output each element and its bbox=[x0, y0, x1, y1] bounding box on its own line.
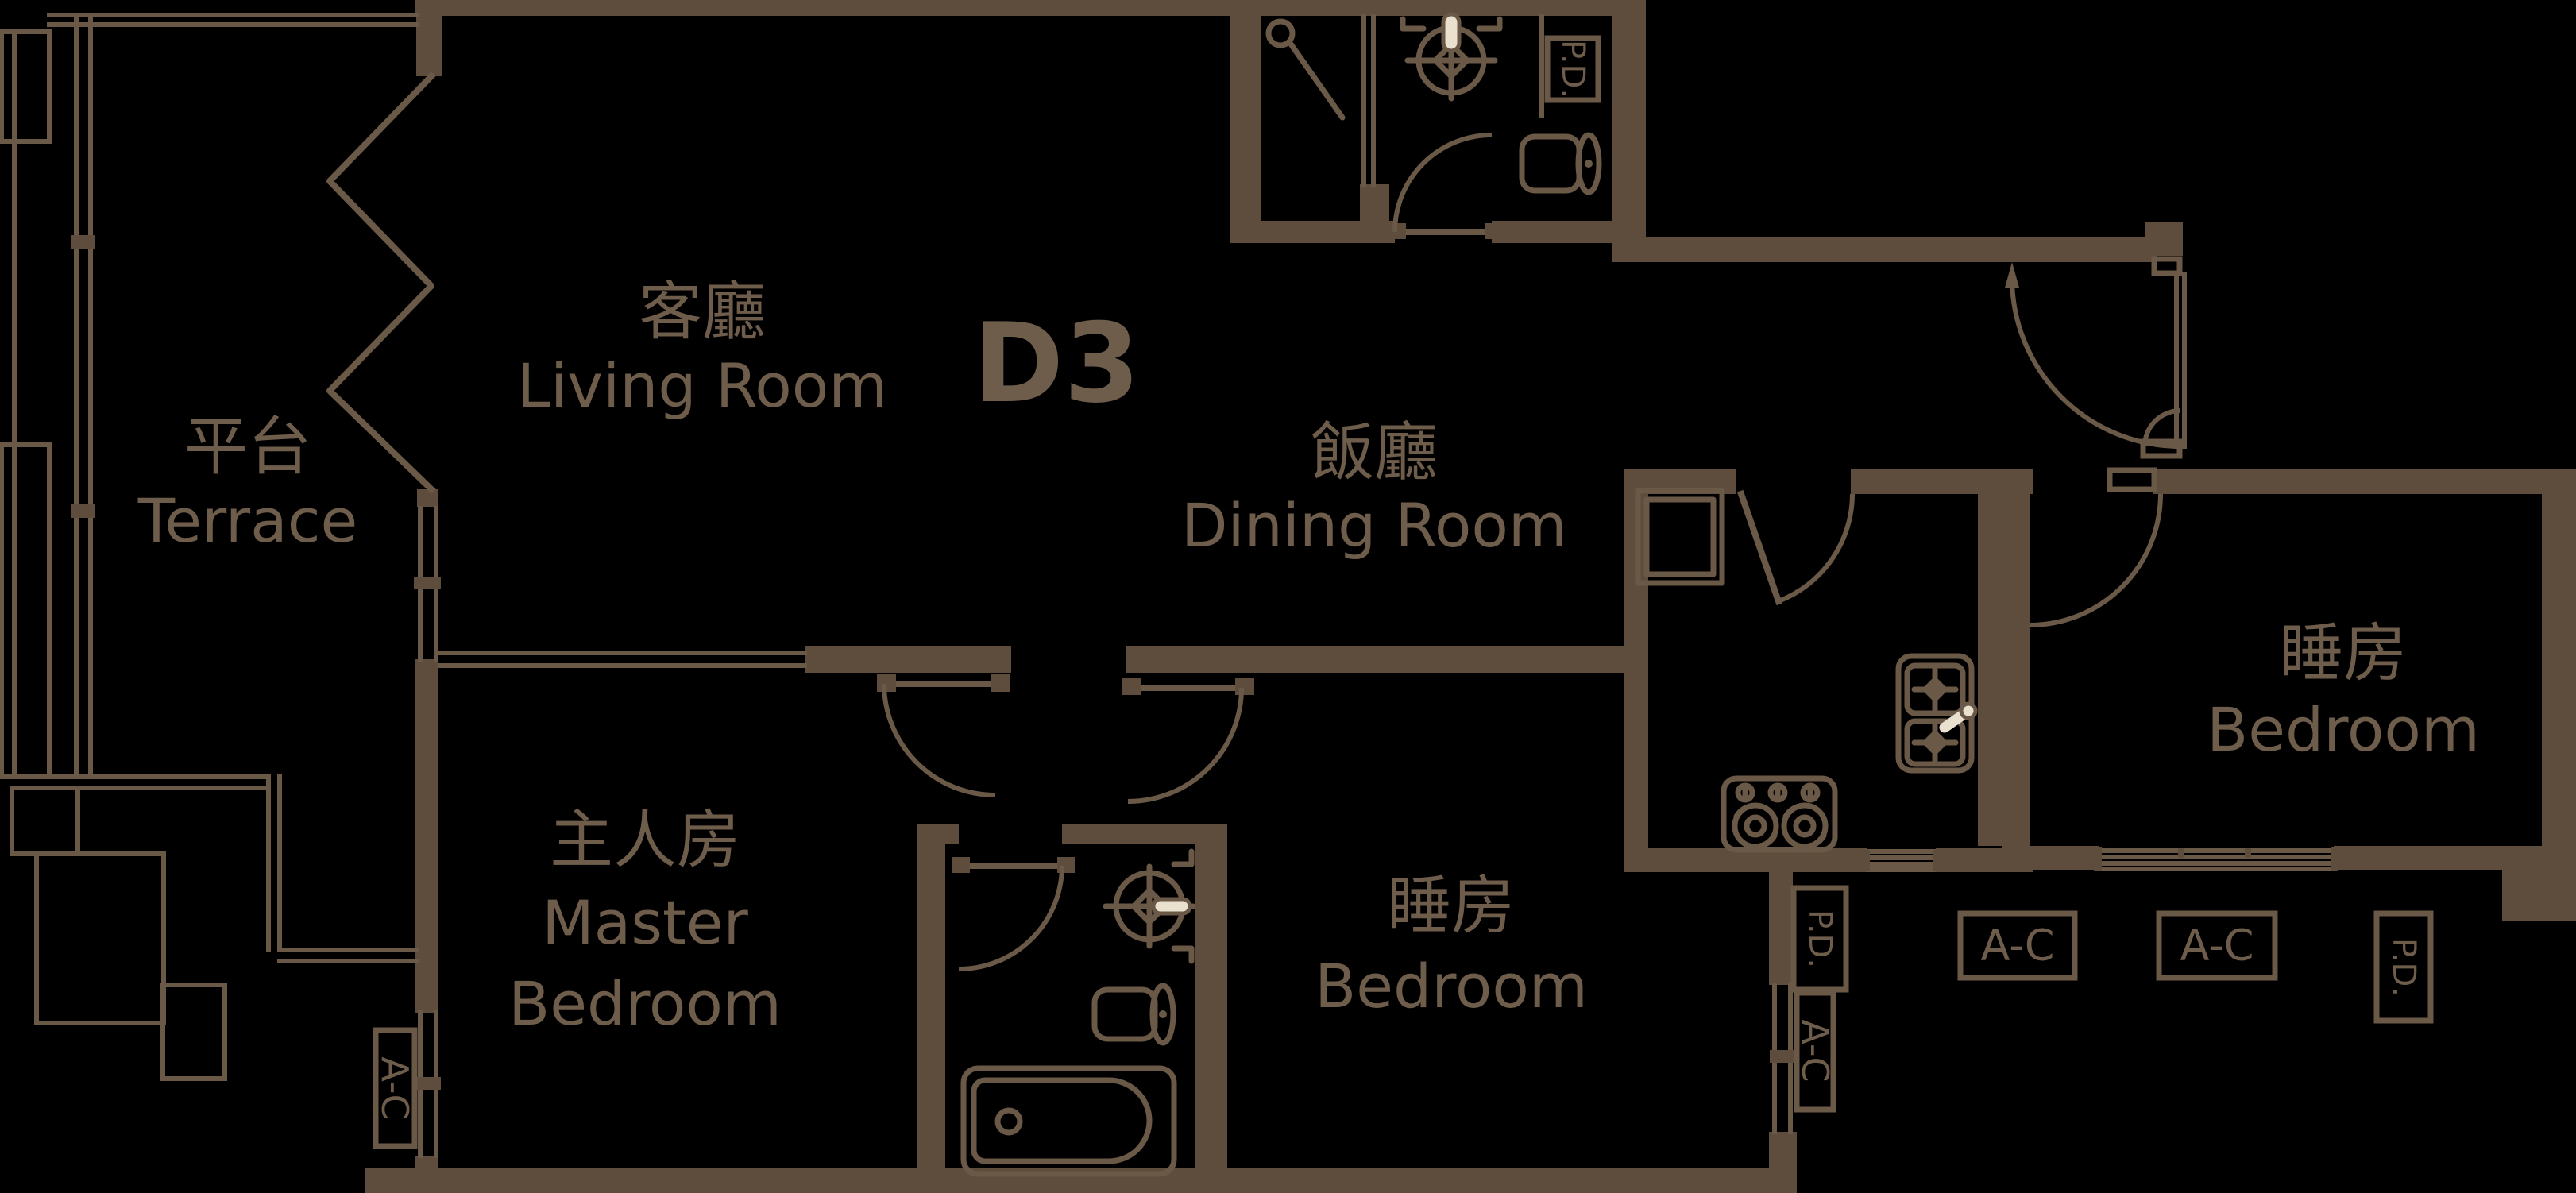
room-label-dining-en: Dining Room bbox=[1181, 490, 1567, 561]
bedroom-middle-door bbox=[1122, 678, 1254, 801]
pd-label-top: P.D. bbox=[1554, 40, 1591, 98]
master-bedroom-door bbox=[877, 674, 1010, 795]
room-label-master-zh: 主人房 bbox=[550, 803, 740, 877]
master-west-window bbox=[414, 1013, 441, 1156]
kitchen-sink bbox=[1898, 656, 1975, 770]
ac-label-right-1: A-C bbox=[1981, 921, 2055, 971]
planter-box bbox=[37, 854, 164, 1023]
room-label-bedroom-right-zh: 睡房 bbox=[2280, 616, 2407, 690]
living-west-window bbox=[414, 508, 441, 659]
room-label-living-en: Living Room bbox=[517, 350, 888, 421]
stove bbox=[1724, 778, 1835, 850]
ac-label-right-2: A-C bbox=[2180, 921, 2254, 971]
bedroom-right-louvre-window bbox=[2094, 847, 2338, 871]
bathroom-lower-fixtures bbox=[964, 851, 1193, 1174]
room-label-terrace-zh: 平台 bbox=[184, 410, 311, 484]
bathroom-top-door bbox=[1388, 135, 1503, 239]
kitchen-door bbox=[1741, 494, 1852, 601]
floorplan-page: 客廳 Living Room D3 飯廳 Dining Room 平台 Terr… bbox=[0, 0, 2576, 1193]
pd-label-right: P.D. bbox=[2385, 938, 2422, 997]
wash-basin-lower bbox=[1106, 867, 1193, 946]
ac-label-master: A-C bbox=[373, 1056, 416, 1119]
room-label-dining-zh: 飯廳 bbox=[1311, 415, 1438, 489]
toilet-lower bbox=[1095, 986, 1173, 1043]
pd-label-shaft: P.D. bbox=[1802, 909, 1838, 968]
room-label-terrace-en: Terrace bbox=[137, 485, 358, 556]
room-label-bedroom-right-en: Bedroom bbox=[2207, 694, 2480, 765]
bathroom-lower-door bbox=[952, 857, 1075, 969]
ac-label-middle: A-C bbox=[1794, 1019, 1836, 1082]
room-label-master-en1: Master bbox=[542, 887, 748, 958]
refrigerator bbox=[1638, 491, 1722, 583]
toilet-top bbox=[1522, 135, 1599, 192]
door-swing-arrow-icon bbox=[2005, 262, 2019, 288]
room-label-bedroom-middle-en: Bedroom bbox=[1315, 951, 1588, 1021]
terrace-window bbox=[71, 16, 95, 777]
bathtub bbox=[964, 1068, 1174, 1174]
bathroom-top-fixtures bbox=[1269, 14, 1599, 192]
room-label-master-en2: Bedroom bbox=[508, 968, 782, 1039]
bedroom-right-door bbox=[2030, 470, 2161, 625]
shower-head bbox=[1269, 21, 1342, 118]
kitchen-louvre-window bbox=[1863, 850, 1939, 871]
room-label-bedroom-middle-zh: 睡房 bbox=[1388, 869, 1515, 943]
planter-box bbox=[163, 985, 225, 1079]
floorplan-svg: 客廳 Living Room D3 飯廳 Dining Room 平台 Terr… bbox=[0, 0, 2576, 1193]
bedroom-middle-east-window bbox=[1770, 985, 1795, 1132]
terrace-bifold-door bbox=[330, 76, 431, 489]
entrance-door bbox=[2005, 259, 2184, 456]
unit-label: D3 bbox=[973, 299, 1141, 427]
shower-screen bbox=[1364, 16, 1373, 184]
master-top-partition bbox=[441, 653, 805, 666]
planter-box bbox=[12, 788, 78, 854]
room-label-living-zh: 客廳 bbox=[639, 275, 766, 349]
kitchen-fixtures bbox=[1638, 491, 1975, 850]
